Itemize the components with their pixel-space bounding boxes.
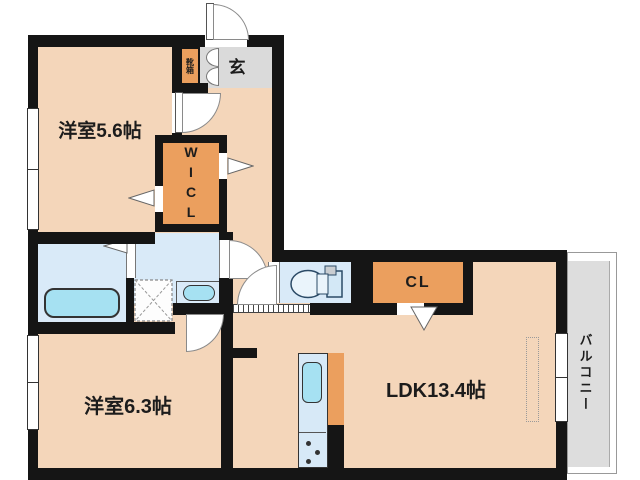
wall-segment [28,468,567,480]
wall-segment [221,312,233,480]
counter-divider [299,432,326,433]
wall-segment [463,250,473,315]
window [27,335,39,430]
stove-burner [315,450,320,455]
opening-arrow-icon [227,157,254,176]
sliding-door [233,304,310,313]
ldk-label: LDK13.4帖 [336,374,536,402]
shoe-cabinet-label: 靴箱 [181,49,199,83]
wicl-opening-left [155,186,163,212]
floor-plan: バルコニー 靴箱 玄 WICL CL [0,0,640,480]
window-sash [28,169,38,170]
closet-label: CL [373,262,463,303]
bathtub-icon [44,288,120,318]
wall-segment [182,83,208,93]
sink-basin [302,362,322,403]
wall-segment [126,278,134,322]
wall-segment [373,303,397,315]
washing-machine-pan-icon [134,279,173,322]
wall-segment [310,303,373,315]
entrance-label: 玄 [222,50,252,80]
wall-segment [233,348,257,358]
bedroom1-label: 洋室5.6帖 [35,116,165,142]
stove-burner [306,441,311,446]
stove-burner [306,459,311,464]
opening-arrow-icon [410,306,439,332]
wall-segment [28,322,175,334]
opening-arrow-icon [128,189,155,208]
wall-segment [272,35,284,262]
door-arc-icon [213,4,249,40]
walk-in-closet-label: WICL [163,145,219,223]
bedroom2-label: 洋室6.3帖 [48,390,208,418]
wall-segment [272,250,567,262]
wall-segment [28,232,155,244]
window-sash [28,382,38,383]
balcony-sliding-window [555,333,568,422]
wicl-opening-right [219,153,227,179]
window-sash [556,377,567,378]
washbasin-icon [183,285,215,301]
balcony-label: バルコニー [572,315,598,430]
toilet-icon [285,264,347,302]
kitchen-sink-icon [298,353,328,468]
wall-segment [328,425,344,468]
